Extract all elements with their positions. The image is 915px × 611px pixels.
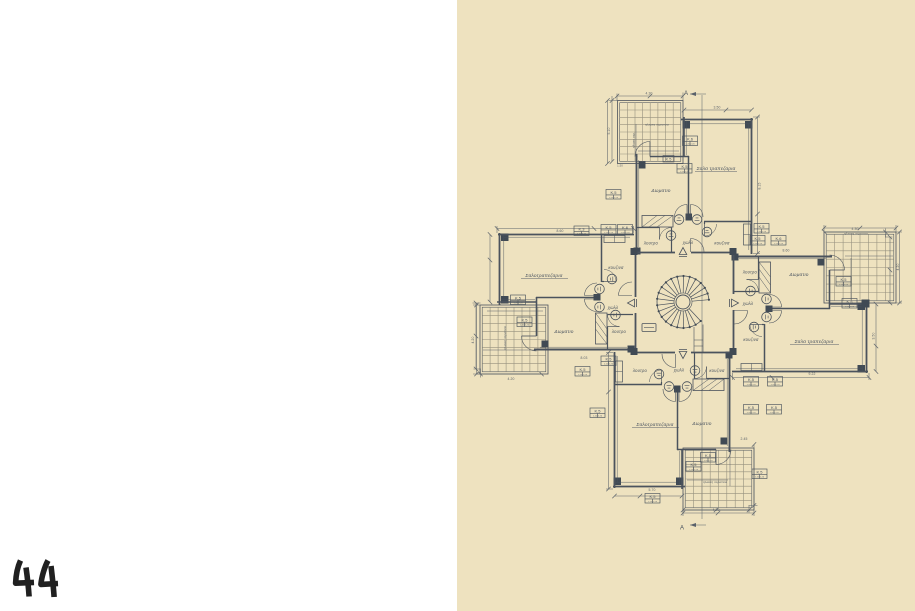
svg-text:Κ.5: Κ.5 bbox=[748, 377, 755, 382]
svg-text:1.20 2.20: 1.20 2.20 bbox=[685, 144, 695, 146]
svg-text:4.20: 4.20 bbox=[713, 508, 720, 512]
svg-text:1.20 2.20: 1.20 2.20 bbox=[577, 234, 587, 236]
svg-text:ηλιακη ταρατσα: ηλιακη ταρατσα bbox=[703, 480, 727, 484]
svg-text:1.20 2.20: 1.20 2.20 bbox=[609, 197, 619, 199]
svg-text:Κ.5: Κ.5 bbox=[665, 156, 672, 161]
svg-text:9.22: 9.22 bbox=[809, 372, 816, 376]
svg-text:1.20 2.20: 1.20 2.20 bbox=[755, 477, 765, 479]
svg-text:3.50: 3.50 bbox=[714, 106, 721, 110]
svg-text:Κ.5: Κ.5 bbox=[515, 295, 522, 300]
svg-text:Κ.5: Κ.5 bbox=[594, 408, 601, 413]
svg-text:1.20 2.20: 1.20 2.20 bbox=[845, 306, 855, 308]
svg-text:Κ.5: Κ.5 bbox=[840, 277, 847, 282]
svg-text:1.20 2.20: 1.20 2.20 bbox=[513, 303, 523, 305]
svg-text:Κ.5: Κ.5 bbox=[772, 377, 779, 382]
svg-text:1.20 2.20: 1.20 2.20 bbox=[746, 412, 756, 414]
svg-text:1.20 2.20: 1.20 2.20 bbox=[703, 460, 713, 462]
svg-text:ηλιακη ταρατσα: ηλιακη ταρατσα bbox=[503, 326, 507, 350]
svg-text:Κ.6: Κ.6 bbox=[687, 136, 694, 141]
svg-text:1.20 2.20: 1.20 2.20 bbox=[578, 374, 588, 376]
svg-text:1.20 2.20: 1.20 2.20 bbox=[839, 284, 849, 286]
svg-text:1.20 2.20: 1.20 2.20 bbox=[620, 232, 630, 234]
svg-text:1.20 2.20: 1.20 2.20 bbox=[769, 412, 779, 414]
svg-text:Κ.5: Κ.5 bbox=[748, 405, 755, 410]
svg-text:3.50: 3.50 bbox=[872, 332, 876, 339]
svg-text:χωλλ: χωλλ bbox=[742, 301, 753, 306]
svg-text:8.60: 8.60 bbox=[557, 229, 564, 233]
svg-text:Σαλα τραπεζαρια: Σαλα τραπεζαρια bbox=[696, 166, 736, 172]
svg-text:κουζινα: κουζινα bbox=[709, 368, 725, 373]
svg-text:Κ.5: Κ.5 bbox=[771, 405, 778, 410]
svg-text:8.15: 8.15 bbox=[758, 182, 762, 189]
svg-text:4.30: 4.30 bbox=[646, 92, 653, 96]
svg-text:Δωματιο: Δωματιο bbox=[650, 188, 670, 194]
svg-text:Κ.5: Κ.5 bbox=[690, 462, 697, 467]
svg-text:1.20 2.20: 1.20 2.20 bbox=[604, 364, 614, 366]
svg-text:1.20 2.20: 1.20 2.20 bbox=[520, 325, 530, 327]
svg-text:5.10: 5.10 bbox=[607, 127, 611, 134]
svg-text:Σαλα τραπεζαρια: Σαλα τραπεζαρια bbox=[794, 339, 834, 345]
svg-text:4.20: 4.20 bbox=[508, 377, 515, 381]
svg-text:1.20 2.20: 1.20 2.20 bbox=[689, 469, 699, 471]
svg-text:Κ.5: Κ.5 bbox=[521, 317, 528, 322]
svg-text:Κ.5: Κ.5 bbox=[605, 356, 612, 361]
svg-text:Κ.5: Κ.5 bbox=[754, 236, 761, 241]
svg-text:8.03: 8.03 bbox=[581, 356, 588, 360]
svg-text:Κ.5: Κ.5 bbox=[681, 164, 688, 169]
svg-text:Δωματιο: Δωματιο bbox=[553, 329, 573, 335]
svg-text:Σαλοτραπεζαρια: Σαλοτραπεζαρια bbox=[524, 273, 562, 279]
svg-text:Σαλοτραπεζαρια: Σαλοτραπεζαρια bbox=[635, 422, 673, 428]
svg-text:Κ.5: Κ.5 bbox=[605, 225, 612, 230]
svg-text:λουτρο: λουτρο bbox=[643, 241, 659, 246]
svg-text:ηλιακη ταρατσα: ηλιακη ταρατσα bbox=[844, 232, 868, 236]
svg-text:κουζινα: κουζινα bbox=[714, 241, 730, 246]
svg-text:4.30: 4.30 bbox=[852, 227, 859, 231]
svg-text:4.20: 4.20 bbox=[896, 263, 900, 270]
svg-text:A: A bbox=[680, 526, 684, 532]
svg-text:Δωματιο: Δωματιο bbox=[691, 421, 711, 427]
svg-text:Κ.6: Κ.6 bbox=[622, 225, 629, 230]
svg-text:λουτρο: λουτρο bbox=[742, 270, 758, 275]
svg-text:Κ.3: Κ.3 bbox=[578, 226, 585, 231]
svg-text:κουζινα: κουζινα bbox=[608, 265, 624, 270]
svg-text:1.20 2.20: 1.20 2.20 bbox=[593, 416, 603, 418]
svg-text:Κ.5: Κ.5 bbox=[649, 494, 656, 499]
svg-text:Κ.5: Κ.5 bbox=[756, 469, 763, 474]
svg-text:1.20 2.20: 1.20 2.20 bbox=[746, 384, 756, 386]
svg-text:Δωματιο: Δωματιο bbox=[788, 272, 808, 278]
svg-text:1.20 2.20: 1.20 2.20 bbox=[757, 231, 767, 233]
svg-text:1.20 2.20: 1.20 2.20 bbox=[648, 501, 658, 503]
svg-text:4.20: 4.20 bbox=[471, 336, 475, 343]
svg-text:Κ.5: Κ.5 bbox=[758, 224, 765, 229]
svg-text:Κ.5: Κ.5 bbox=[579, 367, 586, 372]
svg-text:κουζινα: κουζινα bbox=[743, 337, 759, 342]
svg-text:χωλλ: χωλλ bbox=[607, 305, 618, 310]
svg-text:1.50: 1.50 bbox=[617, 164, 623, 168]
svg-text:χωλλ: χωλλ bbox=[673, 368, 684, 373]
svg-text:ηλιακη ταρατσα: ηλιακη ταρατσα bbox=[645, 123, 669, 127]
svg-text:1.20 2.20: 1.20 2.20 bbox=[774, 243, 784, 245]
svg-text:Κ.5: Κ.5 bbox=[705, 453, 712, 458]
svg-text:λουτρο: λουτρο bbox=[611, 329, 627, 334]
svg-text:λουτρο: λουτρο bbox=[632, 368, 648, 373]
svg-text:Κ.5: Κ.5 bbox=[846, 299, 853, 304]
svg-text:5.70: 5.70 bbox=[649, 488, 656, 492]
svg-text:Κ.6: Κ.6 bbox=[775, 236, 782, 241]
svg-text:Κ.5: Κ.5 bbox=[610, 190, 617, 195]
svg-text:8.60: 8.60 bbox=[783, 249, 790, 253]
svg-text:1.20 2.20: 1.20 2.20 bbox=[680, 171, 690, 173]
svg-text:1.20 2.20: 1.20 2.20 bbox=[770, 384, 780, 386]
svg-text:2.45: 2.45 bbox=[741, 437, 748, 441]
svg-text:ηλιακη ταρ.: ηλιακη ταρ. bbox=[632, 132, 636, 148]
svg-text:1.20 2.20: 1.20 2.20 bbox=[604, 232, 614, 234]
svg-text:χωλλ: χωλλ bbox=[682, 240, 693, 245]
svg-text:1.20 2.20: 1.20 2.20 bbox=[753, 243, 763, 245]
